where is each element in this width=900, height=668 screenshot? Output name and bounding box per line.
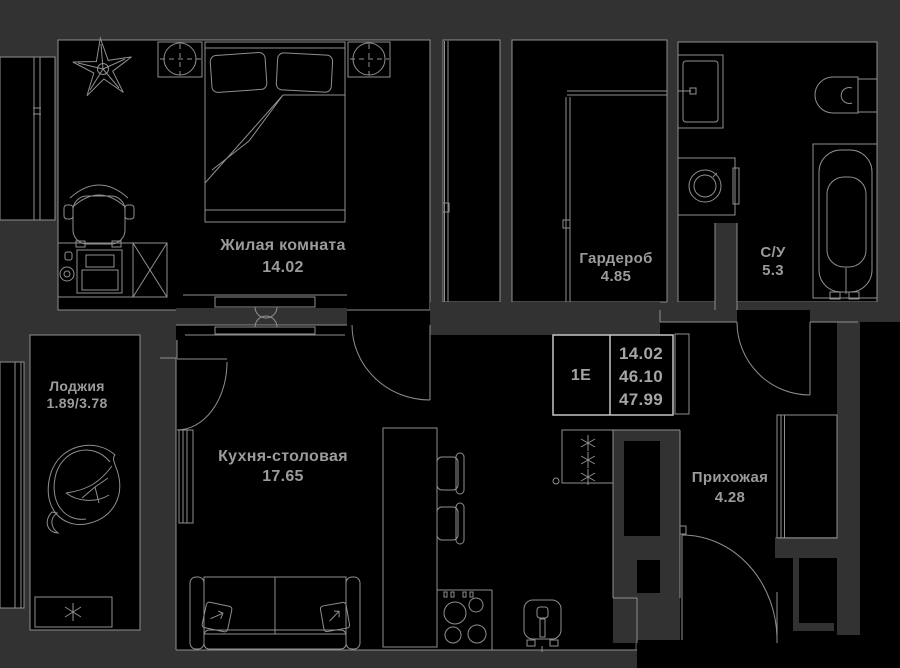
wall-under-wardrobe <box>430 302 660 335</box>
unit-type-label: 1Е <box>571 367 591 384</box>
wall-hall-top-left <box>660 310 737 322</box>
loggia-window-strip <box>0 362 24 608</box>
niche-shaft-1 <box>624 441 660 536</box>
doorway-bathroom <box>737 308 810 322</box>
room-area-wardrobe: 4.85 <box>601 268 631 285</box>
room-area-bedroom: 14.02 <box>262 259 304 276</box>
wall-bathroom-bottom <box>667 302 900 310</box>
room-label-wardrobe: Гардероб <box>579 250 652 267</box>
niche-shaft-2 <box>637 560 660 593</box>
wall-niche-bottom <box>799 623 834 631</box>
floor-plan: 1Е 14.02 46.10 47.99 Жилая комната 14.02… <box>0 0 900 668</box>
room-label-bedroom: Жилая комната <box>219 237 346 254</box>
total-area-value: 47.99 <box>619 390 663 409</box>
room-label-bathroom: С/У <box>760 244 786 261</box>
room-areas <box>0 40 900 668</box>
room-label-kitchen: Кухня-столовая <box>218 448 348 465</box>
room-label-loggia: Лоджия <box>49 378 105 394</box>
wall-kitchen-corner <box>160 340 177 358</box>
doorway-bedroom-kitchen <box>347 308 430 325</box>
floor-plan-canvas: 1Е 14.02 46.10 47.99 Жилая комната 14.02… <box>0 0 900 668</box>
room-area-bathroom: 5.3 <box>762 262 784 279</box>
neighbor-loggia-area <box>0 57 55 220</box>
exterior-right <box>858 322 900 668</box>
room-area-hallway: 4.28 <box>715 489 745 506</box>
room-area-loggia: 1.89/3.78 <box>46 395 107 411</box>
built-in-closet-area <box>443 40 500 302</box>
wall-hall-top-right <box>810 310 900 322</box>
room-label-hallway: Прихожая <box>692 469 768 486</box>
living-area-value: 14.02 <box>619 344 663 363</box>
area-without-loggia-value: 46.10 <box>619 367 663 386</box>
unit-info-box: 1Е 14.02 46.10 47.99 <box>553 335 673 415</box>
wall-hall-right <box>837 322 860 635</box>
niche-shaft-3 <box>799 558 834 623</box>
wall-bath-door-jamb <box>715 223 737 310</box>
wall-niche-left <box>793 558 799 631</box>
wall-kitchen-hall-stub <box>613 598 637 643</box>
room-area-kitchen: 17.65 <box>262 468 304 485</box>
